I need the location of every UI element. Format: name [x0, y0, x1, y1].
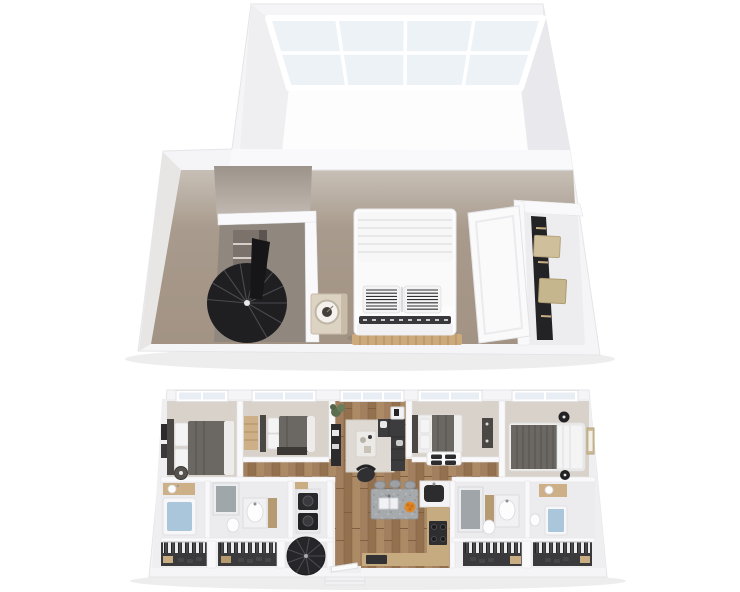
loft-stair-closet [207, 166, 319, 343]
loft-stair-center-pole [244, 300, 250, 306]
bathC-toilet [483, 520, 495, 534]
orange-3 [408, 507, 411, 510]
sofa-pillow-1 [380, 421, 387, 428]
bed1-pillow-top [175, 423, 188, 446]
orange-2 [410, 504, 413, 507]
wall-bathB-laundry [288, 481, 293, 538]
window-bedroom2 [252, 391, 316, 402]
bed4-duvet-stripes [517, 425, 553, 469]
bed3-duvet-runner [432, 415, 454, 453]
fruit-bowl [405, 502, 416, 513]
island-faucet [388, 495, 391, 498]
console-panel-1 [431, 455, 442, 460]
closet-2 [220, 542, 275, 563]
bed2-headboard [260, 415, 266, 452]
nightstand-side-shade [341, 294, 347, 334]
coffee-table-decor-1 [360, 437, 366, 443]
burner-2 [441, 525, 446, 530]
corner-faucet [433, 483, 436, 486]
closet3-shoes-2 [479, 559, 485, 563]
sofa-pillow-2 [396, 440, 403, 446]
island-sink-left [379, 498, 389, 509]
closet3-shoes-1 [470, 557, 476, 561]
bedroom-2 [244, 415, 315, 455]
window-bedroom4 [512, 391, 578, 402]
wall-left-corridor [327, 481, 333, 568]
closet2-shoes-3 [256, 557, 262, 561]
bathB-cabinet [268, 498, 277, 528]
skylight-room-floor [282, 88, 528, 152]
tv-console-item-1 [332, 430, 339, 436]
closet2-shoes-2 [247, 559, 253, 563]
closet4-shoes-2 [554, 559, 560, 563]
orange-1 [406, 503, 409, 506]
closet1-shoes-1 [178, 558, 184, 562]
burner-4 [441, 537, 446, 542]
closet-3 [465, 542, 521, 564]
laundry-basket [295, 482, 308, 489]
dresser-decor-1 [486, 423, 489, 426]
bathB-faucet [254, 503, 257, 506]
bed2-pillow-top [268, 418, 279, 433]
plant-leaf-1 [337, 404, 345, 412]
bathtub-water [167, 502, 192, 531]
bathD-toilet [530, 514, 540, 526]
bar-stool-2 [390, 480, 401, 488]
closet3-shoes-3 [488, 558, 494, 562]
bathC-sink [499, 500, 515, 520]
wall-closet1-closet2 [207, 541, 216, 568]
window-glass [343, 393, 401, 400]
bar-stool-1 [375, 481, 386, 489]
floorplan-canvas [0, 0, 740, 592]
closet2-shoes-1 [238, 558, 244, 562]
bed4-wall-art-inner [589, 431, 593, 451]
wall-living-br3 [406, 401, 412, 457]
nook-upper-wall-face [214, 166, 312, 219]
bathA-faucet [177, 485, 179, 487]
bed2-bookshelf [244, 416, 258, 450]
main-spiral-staircase [287, 537, 325, 575]
wall-bathA-bathB [205, 481, 210, 538]
side-table-decor-bottom [564, 474, 567, 477]
bathA-basin [168, 485, 176, 493]
wall-right-corridor [450, 481, 455, 568]
corner-sink [424, 485, 444, 502]
bed1-headboard [167, 419, 174, 475]
closet2-hanging-clothes [220, 542, 275, 553]
console-panel-2 [445, 455, 456, 460]
wall-closet2-stair [277, 541, 285, 568]
bed1-white-throw [224, 421, 234, 475]
closet2-box [221, 556, 231, 563]
side-table-decor-top [563, 416, 566, 419]
floorplan-rendering [0, 0, 740, 592]
bed3-dresser [482, 418, 493, 448]
tv-console-item-2 [332, 444, 339, 449]
bed4-striped-duvet [511, 425, 557, 469]
closet1-box [163, 556, 173, 563]
closet1-shoes-2 [187, 559, 193, 563]
main-level-floorplan [130, 390, 626, 590]
wall-closet3-closet4 [522, 541, 531, 568]
wall-bathC-bathD [525, 481, 530, 538]
bed-base-lip [357, 324, 453, 334]
closet2-shoes-4 [265, 558, 271, 562]
closet3-hanging-clothes [465, 542, 520, 553]
dryer-door [303, 516, 313, 526]
bathC-faucet [506, 500, 509, 503]
wall-right-wing-top [452, 477, 595, 482]
plant-leaf-2 [330, 404, 336, 410]
closet-1 [163, 542, 205, 563]
closet4-shoes-3 [563, 557, 569, 561]
bed2-pillow-bottom [268, 434, 279, 449]
storage-box-1 [533, 235, 560, 257]
bathC-shower-water [461, 490, 480, 529]
bathB-shower-water [216, 486, 236, 512]
bed3-headboard [412, 415, 418, 453]
coffee-table-tray [364, 446, 371, 453]
washer-door [303, 496, 313, 506]
island-sink-right [390, 498, 398, 509]
bathroom-1 [163, 483, 196, 535]
bathD-shower-water [548, 509, 564, 532]
burner-3 [432, 537, 437, 542]
window-living [340, 391, 404, 402]
bed1-table-decor [179, 471, 183, 475]
bed3-pillow-bottom [420, 435, 430, 449]
bed3-pillow-top [420, 419, 430, 433]
wall-br1-br2 [237, 401, 243, 477]
closet4-box [580, 556, 590, 563]
console-panel-3 [431, 461, 442, 466]
wall-left-wing-top [161, 477, 335, 482]
window-bedroom3 [418, 391, 482, 402]
closet4-hanging-clothes [535, 542, 590, 553]
bar-stool-3 [405, 481, 416, 489]
loft-level-floorplan [125, 4, 615, 371]
laundry-nook [295, 482, 320, 533]
closet1-hanging-clothes [163, 542, 205, 553]
console-panel-4 [445, 461, 456, 466]
skylight-room [240, 4, 570, 152]
dresser-decor-2 [486, 440, 489, 443]
coffee-table-decor-2 [368, 435, 372, 439]
closet4-shoes-1 [545, 558, 551, 562]
window-bedroom1 [176, 391, 228, 402]
closet3-box [510, 556, 521, 564]
bedroom-1 [161, 419, 234, 480]
closet1-shoes-3 [196, 557, 202, 561]
loft-wardrobe [468, 200, 585, 345]
counter-appliance [366, 555, 387, 564]
bathD-basin [545, 486, 553, 494]
bed2-desk [277, 447, 307, 455]
wall-br3-br4 [499, 401, 505, 477]
wall-art-2 [161, 444, 168, 458]
burner-1 [432, 525, 437, 530]
wall-br2-bottom [243, 457, 329, 462]
storage-box-2 [538, 278, 566, 303]
coffee-table [356, 431, 376, 457]
wall-art-1 [161, 424, 168, 440]
bed2-white-throw [307, 416, 315, 452]
side-table-decor [394, 409, 399, 416]
spiral-stair-pole [304, 554, 308, 558]
bathB-toilet [227, 518, 239, 532]
